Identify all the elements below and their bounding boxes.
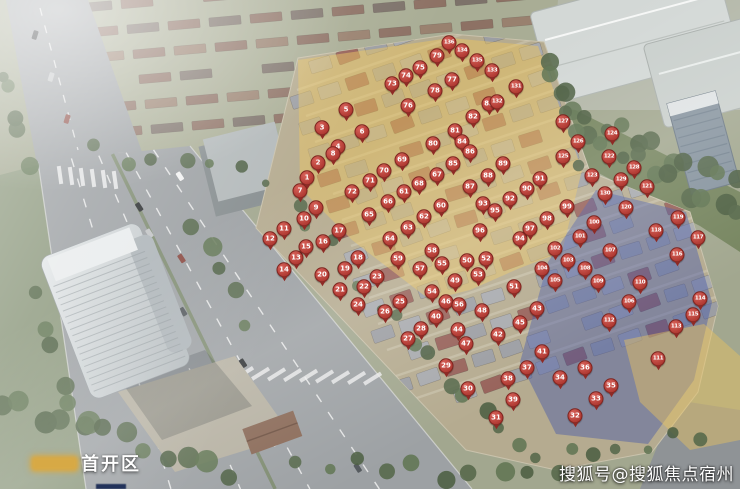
plot-marker: 70 — [377, 163, 392, 178]
plot-marker: 118 — [649, 223, 664, 238]
plot-marker: 19 — [338, 261, 353, 276]
plot-marker: 35 — [604, 378, 619, 393]
plot-marker: 133 — [485, 63, 500, 78]
plot-marker: 44 — [451, 322, 466, 337]
plot-marker: 82 — [466, 109, 481, 124]
plot-marker: 111 — [651, 351, 666, 366]
plot-marker: 135 — [470, 53, 485, 68]
plot-marker: 7 — [293, 183, 308, 198]
plot-marker: 8 — [326, 146, 341, 161]
plot-marker: 58 — [425, 243, 440, 258]
plot-marker: 50 — [460, 253, 475, 268]
plot-marker: 101 — [573, 229, 588, 244]
plot-marker: 76 — [401, 98, 416, 113]
plot-marker: 97 — [523, 221, 538, 236]
plot-marker: 123 — [585, 168, 600, 183]
plot-marker: 108 — [578, 261, 593, 276]
plot-marker: 17 — [332, 223, 347, 238]
plot-marker: 49 — [448, 273, 463, 288]
plot-marker: 42 — [491, 327, 506, 342]
plot-marker: 27 — [401, 331, 416, 346]
plot-marker: 64 — [383, 231, 398, 246]
plot-marker: 90 — [520, 181, 535, 196]
plot-marker: 3 — [315, 120, 330, 135]
plot-marker: 20 — [315, 267, 330, 282]
plot-marker: 60 — [434, 198, 449, 213]
plot-marker: 48 — [475, 303, 490, 318]
plot-marker: 26 — [378, 304, 393, 319]
plot-marker: 6 — [355, 124, 370, 139]
plot-marker: 31 — [489, 410, 504, 425]
plot-marker: 39 — [506, 392, 521, 407]
plot-marker: 132 — [490, 94, 505, 109]
plot-marker: 53 — [471, 267, 486, 282]
plot-marker: 115 — [686, 307, 701, 322]
plot-marker: 102 — [548, 241, 563, 256]
plot-marker: 125 — [556, 149, 571, 164]
plot-marker: 86 — [463, 144, 478, 159]
plot-marker: 40 — [429, 309, 444, 324]
site-aerial-rendering: 1234567891011121314151617181920212223242… — [0, 0, 740, 489]
plot-marker: 128 — [627, 160, 642, 175]
plot-marker: 57 — [413, 261, 428, 276]
plot-marker: 96 — [473, 223, 488, 238]
plot-marker: 72 — [345, 184, 360, 199]
plot-marker: 120 — [619, 200, 634, 215]
plot-marker: 67 — [430, 167, 445, 182]
plot-marker: 130 — [598, 186, 613, 201]
plot-marker: 65 — [362, 207, 377, 222]
plot-marker: 89 — [496, 156, 511, 171]
plot-marker: 47 — [459, 336, 474, 351]
plot-marker: 21 — [333, 282, 348, 297]
plot-marker: 66 — [381, 194, 396, 209]
plot-marker: 129 — [614, 172, 629, 187]
plot-marker: 16 — [316, 234, 331, 249]
plot-marker: 116 — [670, 247, 685, 262]
plot-marker: 106 — [622, 294, 637, 309]
plot-marker: 59 — [391, 251, 406, 266]
aerial-scene — [0, 0, 740, 489]
plot-marker: 14 — [277, 262, 292, 277]
plot-marker: 69 — [395, 152, 410, 167]
legend-first-phase-label: 首开区 — [81, 450, 141, 476]
plot-marker: 30 — [461, 381, 476, 396]
plot-marker: 56 — [452, 297, 467, 312]
plot-marker: 78 — [428, 83, 443, 98]
legend-first-phase-swatch — [31, 456, 78, 471]
plot-marker: 95 — [488, 203, 503, 218]
plot-marker: 124 — [605, 126, 620, 141]
watermark-text: 搜狐号@搜狐焦点宿州站 — [559, 460, 740, 489]
plot-marker: 79 — [430, 48, 445, 63]
plot-marker: 18 — [351, 250, 366, 265]
plot-marker: 99 — [560, 199, 575, 214]
plot-marker: 38 — [501, 371, 516, 386]
plot-marker: 5 — [339, 102, 354, 117]
plot-marker: 126 — [571, 134, 586, 149]
plot-marker: 122 — [602, 149, 617, 164]
plot-marker: 2 — [311, 155, 326, 170]
plot-marker: 45 — [513, 315, 528, 330]
plot-marker: 12 — [263, 231, 278, 246]
plot-marker: 36 — [578, 360, 593, 375]
plot-marker: 80 — [426, 136, 441, 151]
plot-marker: 9 — [309, 200, 324, 215]
plot-marker: 23 — [370, 269, 385, 284]
plot-marker: 62 — [417, 209, 432, 224]
plot-marker: 131 — [509, 79, 524, 94]
plot-marker: 54 — [425, 284, 440, 299]
plot-marker: 29 — [439, 358, 454, 373]
plot-marker: 43 — [530, 301, 545, 316]
plot-marker: 41 — [535, 344, 550, 359]
plot-marker: 22 — [357, 279, 372, 294]
plot-marker: 110 — [633, 275, 648, 290]
plot-marker: 10 — [297, 211, 312, 226]
plot-marker: 51 — [507, 279, 522, 294]
plot-marker: 87 — [463, 179, 478, 194]
plot-marker: 68 — [412, 176, 427, 191]
plot-marker: 85 — [446, 156, 461, 171]
plot-marker: 77 — [445, 72, 460, 87]
plot-marker: 105 — [548, 273, 563, 288]
plot-marker: 28 — [414, 321, 429, 336]
plot-marker: 107 — [603, 243, 618, 258]
plot-marker: 100 — [587, 215, 602, 230]
plot-marker: 71 — [363, 173, 378, 188]
plot-marker: 37 — [520, 360, 535, 375]
plot-marker: 73 — [385, 76, 400, 91]
plot-marker: 61 — [397, 184, 412, 199]
plot-marker: 74 — [399, 68, 414, 83]
plot-marker: 92 — [503, 191, 518, 206]
plot-marker: 113 — [669, 319, 684, 334]
plot-marker: 104 — [535, 261, 550, 276]
plot-marker: 91 — [533, 171, 548, 186]
plot-marker: 34 — [553, 370, 568, 385]
plot-marker: 127 — [556, 114, 571, 129]
plot-marker: 121 — [640, 179, 655, 194]
plot-marker: 25 — [393, 294, 408, 309]
plot-marker: 134 — [455, 43, 470, 58]
plot-marker: 114 — [693, 291, 708, 306]
legend-second-swatch-partial — [96, 484, 126, 489]
plot-marker: 88 — [481, 168, 496, 183]
plot-marker: 32 — [568, 408, 583, 423]
plot-marker: 33 — [589, 391, 604, 406]
plot-marker: 109 — [591, 274, 606, 289]
plot-marker: 11 — [277, 221, 292, 236]
plot-marker: 52 — [479, 251, 494, 266]
plot-marker: 24 — [351, 297, 366, 312]
plot-marker: 117 — [691, 230, 706, 245]
plot-marker: 15 — [299, 239, 314, 254]
plot-marker: 75 — [413, 60, 428, 75]
plot-marker: 98 — [540, 211, 555, 226]
plot-marker: 119 — [671, 210, 686, 225]
plot-marker: 103 — [561, 253, 576, 268]
plot-marker: 136 — [442, 35, 457, 50]
plot-marker: 112 — [602, 313, 617, 328]
plot-marker: 63 — [401, 220, 416, 235]
plot-marker: 55 — [435, 256, 450, 271]
